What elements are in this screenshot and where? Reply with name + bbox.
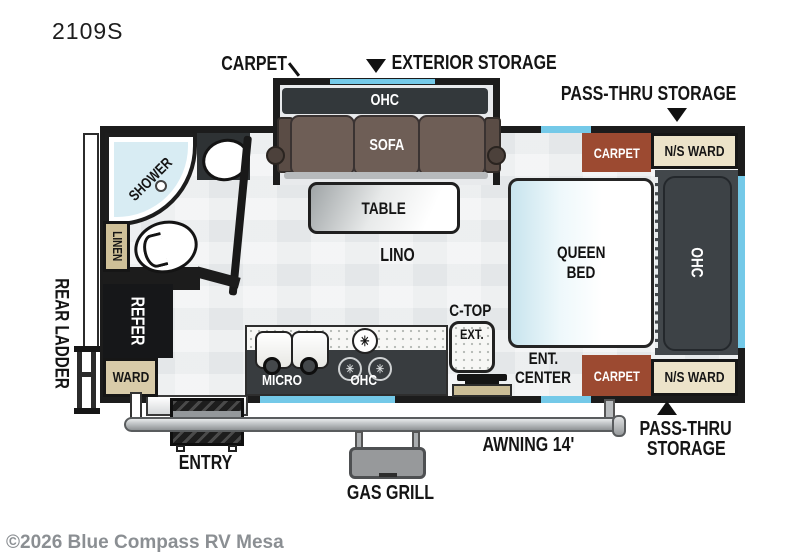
window	[541, 396, 591, 403]
sofa-shadow	[284, 172, 488, 179]
kitchen-ohc-label: OHC	[336, 368, 392, 392]
pass-thru-storage-top-label: PASS-THRU STORAGE	[559, 81, 739, 107]
ns-wardrobe-top: N/S WARD	[651, 133, 738, 169]
tv	[457, 374, 507, 381]
awning-bracket	[130, 392, 142, 420]
sofa-leg	[487, 146, 506, 165]
carpet-area-bottom: CARPET	[582, 355, 651, 396]
exterior-storage-arrow-icon	[366, 59, 386, 73]
window	[330, 79, 435, 84]
carpet-area-top: CARPET	[582, 133, 651, 172]
window	[541, 126, 591, 133]
lino-label: LINO	[347, 244, 447, 266]
bed-label-line1: QUEEN	[557, 243, 605, 263]
gas-grill-label: GAS GRILL	[325, 481, 455, 505]
table: TABLE	[308, 182, 460, 234]
microwave-label: MICRO	[252, 368, 312, 392]
ctop-label: C-TOP	[420, 299, 520, 321]
awning-rail	[124, 417, 622, 432]
stove-burner-icon: ✳	[352, 328, 378, 354]
bedroom-ohc-label: OHC	[655, 170, 738, 355]
ladder-rail	[91, 352, 96, 408]
sofa-cushion	[290, 115, 355, 176]
entry-label: ENTRY	[146, 451, 266, 475]
window	[738, 176, 745, 348]
awning-label: AWNING 14'	[438, 433, 618, 457]
slide-ohc-cabinet: OHC	[282, 88, 488, 114]
sofa-cushion	[418, 115, 486, 176]
pass-thru-bottom-label-line2: STORAGE	[626, 438, 746, 460]
queen-bed: QUEEN BED	[508, 178, 654, 348]
rear-ladder-label: REAR LADDER	[40, 258, 82, 408]
watermark: ©2026 Blue Compass RV Mesa	[6, 532, 284, 554]
pass-thru-bottom-arrow-icon	[657, 401, 677, 415]
linen-cabinet: LINEN	[103, 221, 130, 272]
pass-thru-top-arrow-icon	[667, 108, 687, 122]
ns-wardrobe-bottom: N/S WARD	[651, 359, 738, 396]
page-title: 2109S	[52, 18, 124, 45]
sofa-leg	[266, 146, 285, 165]
shower-label: SHOWER	[105, 133, 197, 226]
ent-center-label-line2: CENTER	[503, 367, 583, 387]
ent-center-label-line1: ENT.	[503, 350, 583, 367]
gas-grill	[349, 447, 426, 479]
sofa: SOFA	[353, 115, 420, 176]
bed-label-line2: BED	[567, 263, 596, 283]
exterior-storage-label: EXTERIOR STORAGE	[384, 50, 564, 76]
toilet-seat-line	[140, 232, 169, 270]
window	[260, 396, 395, 403]
grill-handle	[379, 473, 397, 477]
floorplan-page: 2109S REAR LADDER OHC SOFA SHOWER	[0, 0, 800, 558]
refrigerator: REFER	[103, 284, 173, 358]
ctop-ext-label: EXT.	[449, 326, 495, 342]
pass-thru-bottom-label-line1: PASS-THRU	[626, 418, 746, 440]
